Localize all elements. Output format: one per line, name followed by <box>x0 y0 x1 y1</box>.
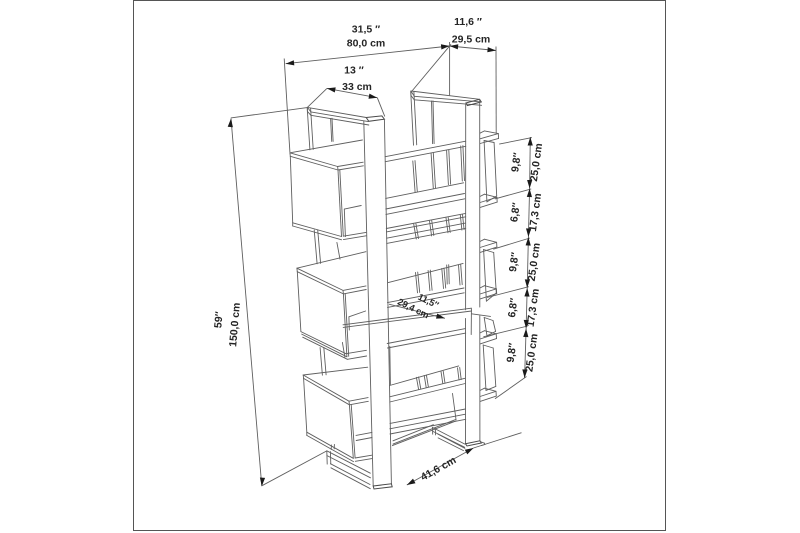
svg-text:29,5 cm: 29,5 cm <box>452 34 491 46</box>
svg-text:31,5 ″: 31,5 ″ <box>352 24 380 36</box>
svg-text:41,6 cm: 41,6 cm <box>419 454 459 483</box>
svg-text:9,8″: 9,8″ <box>507 252 522 273</box>
svg-text:9,8″: 9,8″ <box>505 342 520 363</box>
svg-text:11,6 ″: 11,6 ″ <box>454 16 482 28</box>
svg-text:59″: 59″ <box>212 311 225 329</box>
svg-text:6,8″: 6,8″ <box>508 202 523 223</box>
svg-text:80,0 cm: 80,0 cm <box>347 38 386 50</box>
svg-text:150,0 cm: 150,0 cm <box>227 302 243 347</box>
svg-text:6,8″: 6,8″ <box>506 297 521 318</box>
svg-text:13 ″: 13 ″ <box>344 65 364 77</box>
svg-text:9,8″: 9,8″ <box>509 152 524 173</box>
svg-text:33 cm: 33 cm <box>342 81 372 93</box>
